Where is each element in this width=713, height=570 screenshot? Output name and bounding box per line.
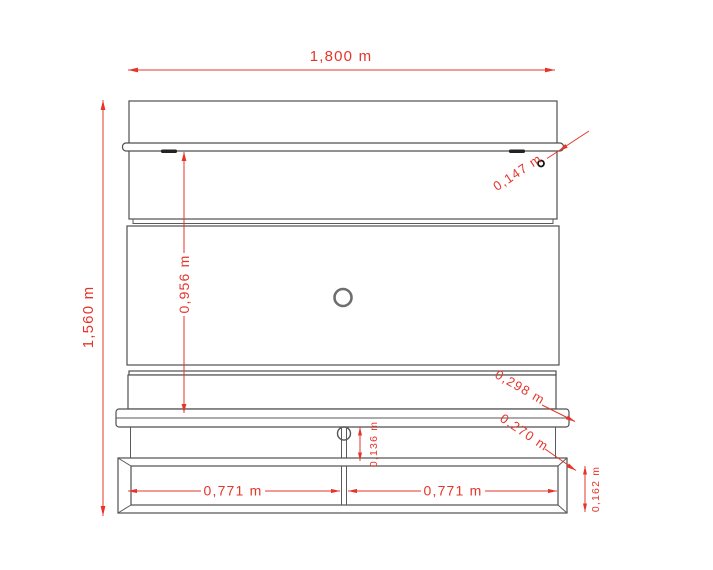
dim-overall-width: 1,800 m — [128, 48, 555, 72]
led-clip-right-icon — [509, 150, 525, 154]
hook-gap-label: 0,136 m — [368, 421, 380, 467]
overall-height-label: 1,560 m — [80, 286, 97, 349]
drawing-canvas: 1,800 m 1,560 m 0,956 m 0,147 m 0,2 — [0, 0, 713, 570]
base-unit-height-label: 0,162 m — [590, 466, 602, 512]
panel-drop-label: 0,956 m — [176, 255, 192, 314]
arrow-up-icon — [358, 427, 362, 436]
arrow-up-icon — [101, 100, 106, 110]
arrow-down-icon — [101, 506, 106, 516]
furniture-technical-drawing: 1,800 m 1,560 m 0,956 m 0,147 m 0,2 — [0, 0, 713, 570]
top-shelf — [123, 143, 564, 151]
cable-hole-icon — [335, 289, 352, 306]
overall-width-label: 1,800 m — [310, 48, 373, 65]
base-unit-opening — [131, 466, 558, 505]
left-bay-label: 0,771 m — [204, 483, 263, 499]
dim-overall-height: 1,560 m — [80, 100, 105, 516]
lower-rail — [129, 371, 556, 375]
cable-hook-icon — [338, 427, 351, 440]
arrow-right-icon — [545, 68, 555, 73]
upper-panel-bottom-edge — [133, 219, 553, 224]
arrow-down-icon — [583, 504, 587, 513]
dim-base-unit-height: 0,162 m — [583, 466, 602, 512]
lower-band — [128, 375, 556, 409]
arrow-left-icon — [128, 68, 138, 73]
arrow-up-icon — [583, 466, 587, 475]
led-clip-left-icon — [161, 150, 177, 154]
upper-panel — [129, 101, 557, 219]
right-bay-label: 0,771 m — [424, 483, 483, 499]
